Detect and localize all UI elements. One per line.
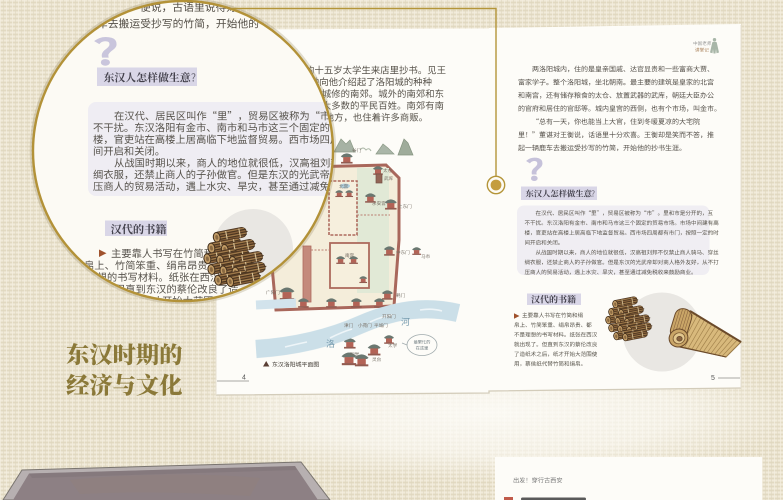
svg-text:4: 4 <box>242 375 246 382</box>
svg-text:5: 5 <box>711 375 715 382</box>
